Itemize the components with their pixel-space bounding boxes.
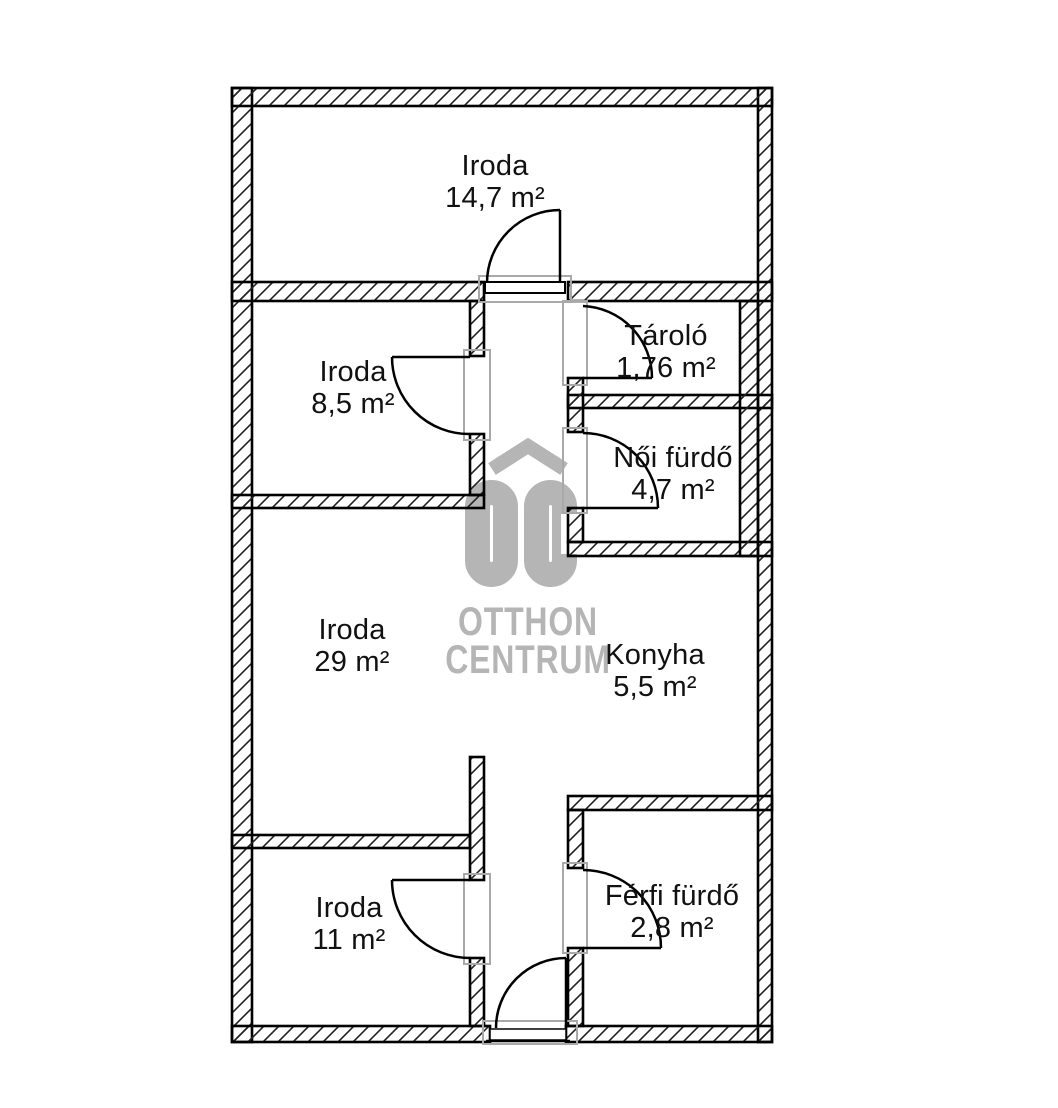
- room-name: Tároló: [616, 320, 716, 352]
- wall-outer-bottom-left: [232, 1026, 490, 1042]
- wall-corridor-left-a2: [470, 434, 484, 495]
- room-name: Iroda: [311, 356, 394, 388]
- room-label-iroda-11: Iroda 11 m²: [313, 892, 386, 956]
- door-jamb-iroda11: [464, 874, 490, 964]
- wall-corridor-left-a1: [470, 301, 484, 356]
- room-label-konyha: Konyha 5,5 m²: [605, 639, 705, 703]
- wall-outer-bottom-right: [566, 1026, 772, 1042]
- wall-corridor-right-b2: [568, 948, 583, 1026]
- room-area: 5,5 m²: [605, 671, 705, 703]
- wall-top-room-bottom-right: [568, 282, 772, 301]
- wall-corridor-right-b1: [568, 810, 583, 868]
- wall-konyha-bottom: [568, 796, 772, 810]
- wall-outer-left: [232, 88, 252, 1042]
- door-arc-iroda11: [392, 880, 470, 958]
- door-arc-entrance: [496, 958, 566, 1028]
- wall-iroda85-bottom: [232, 495, 484, 508]
- watermark-line2: CENTRUM: [445, 637, 611, 682]
- room-name: Iroda: [445, 150, 545, 182]
- wall-outer-top: [232, 88, 772, 106]
- room-label-tarolo: Tároló 1,76 m²: [616, 320, 716, 384]
- room-name: Iroda: [314, 614, 389, 646]
- door-jamb-tarolo: [563, 301, 587, 385]
- room-label-iroda-85: Iroda 8,5 m²: [311, 356, 394, 420]
- room-area: 14,7 m²: [445, 182, 545, 214]
- logo-letter-c: [537, 493, 565, 575]
- logo-roof-chevron-icon: [492, 446, 564, 469]
- room-area: 8,5 m²: [311, 388, 394, 420]
- room-area: 1,76 m²: [616, 352, 716, 384]
- room-label-noi-furdo: Női fürdő 4,7 m²: [613, 442, 732, 506]
- wall-iroda29-bottom: [232, 835, 470, 848]
- wall-corridor-left-b2: [470, 958, 484, 1026]
- wall-top-room-bottom-left: [232, 282, 484, 301]
- threshold-top-room: [485, 282, 565, 293]
- room-name: Iroda: [313, 892, 386, 924]
- wall-corridor-left-b1: [470, 757, 484, 880]
- door-arc-iroda85: [392, 357, 470, 434]
- room-area: 4,7 m²: [613, 474, 732, 506]
- room-area: 11 m²: [313, 924, 386, 956]
- room-label-iroda-29: Iroda 29 m²: [314, 614, 389, 678]
- room-label-iroda-top: Iroda 14,7 m²: [445, 150, 545, 214]
- room-area: 29 m²: [314, 646, 389, 678]
- floor-plan-canvas: OTTHON CENTRUM: [0, 0, 1058, 1108]
- door-jamb-iroda85: [464, 350, 490, 440]
- door-arc-top-room: [487, 210, 560, 283]
- threshold-entrance: [490, 1029, 566, 1040]
- room-name: Női fürdő: [613, 442, 732, 474]
- room-name: Férfi fürdő: [605, 880, 739, 912]
- wall-corridor-right-a1: [568, 378, 583, 432]
- door-jamb-ferfifurdo: [563, 863, 587, 953]
- room-label-ferfi-furdo: Férfi fürdő 2,8 m²: [605, 880, 739, 944]
- room-area: 2,8 m²: [605, 912, 739, 944]
- wall-right-thick: [740, 301, 758, 556]
- wall-outer-right: [758, 88, 772, 1042]
- room-name: Konyha: [605, 639, 705, 671]
